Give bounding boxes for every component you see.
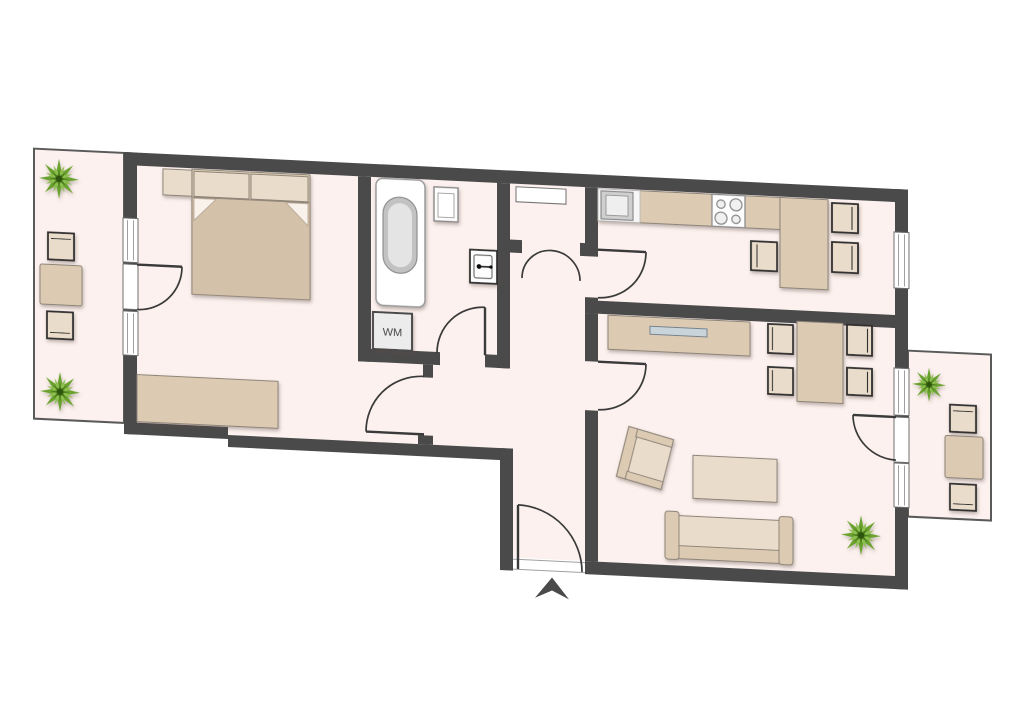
wall-closet-sill-left xyxy=(510,239,522,253)
kitchen-chair xyxy=(832,203,858,233)
balcony-chair xyxy=(950,405,976,433)
balcony-chair xyxy=(48,232,74,260)
closet-niche xyxy=(516,187,566,204)
wall-bedroom-door-jamb-bottom xyxy=(418,435,433,445)
wall-kitchen-west-upper xyxy=(585,187,598,250)
bedroom-balcony-door-opening xyxy=(123,264,138,310)
washing-machine-label: WM xyxy=(383,326,403,339)
living-balcony-window-lower xyxy=(894,463,909,508)
floor-plan-drawing: WM xyxy=(0,0,1024,724)
wall-bathroom-west xyxy=(358,176,371,362)
dining-chair xyxy=(768,367,793,395)
living-balcony-window-upper xyxy=(894,368,909,416)
kitchen-sink xyxy=(601,191,633,221)
living-balcony-door-opening xyxy=(894,417,909,463)
duvet xyxy=(192,197,310,300)
balcony-chair xyxy=(47,311,73,339)
kitchen-table xyxy=(780,197,828,289)
dining-chair xyxy=(768,324,793,354)
pillow xyxy=(194,171,249,199)
wall-living-west-upper xyxy=(585,313,598,362)
bathtub-basin-inner xyxy=(388,203,412,268)
pillow xyxy=(251,174,308,202)
wall-living-west-lower xyxy=(585,410,598,562)
kitchen-window xyxy=(894,232,909,289)
kitchen-chair xyxy=(832,242,858,273)
stove xyxy=(712,194,745,228)
dining-chair xyxy=(847,368,872,396)
dresser xyxy=(137,375,278,429)
kitchen-chair xyxy=(751,241,777,271)
dining-chair xyxy=(847,325,872,356)
dining-table xyxy=(797,321,843,403)
wall-bathroom-east xyxy=(497,183,510,369)
coffee-table xyxy=(693,455,777,502)
nightstand xyxy=(163,169,192,196)
sideboard xyxy=(608,315,750,356)
floor-plan-canvas: WM xyxy=(0,0,1024,724)
balcony-table xyxy=(40,264,82,306)
entrance-arrow-icon xyxy=(535,577,569,600)
washing-machine: WM xyxy=(373,312,412,351)
plan-sheared-group: WM xyxy=(34,148,991,620)
wall-bedroom-door-jamb-top xyxy=(423,364,433,377)
bedroom-balcony-window-lower xyxy=(123,311,138,356)
bedroom-balcony-window-upper xyxy=(123,218,138,263)
balcony-chair xyxy=(950,484,976,511)
washbasin xyxy=(434,187,458,222)
balcony-table xyxy=(945,435,983,479)
toilet xyxy=(470,250,497,284)
wall-entry-left xyxy=(500,448,513,571)
